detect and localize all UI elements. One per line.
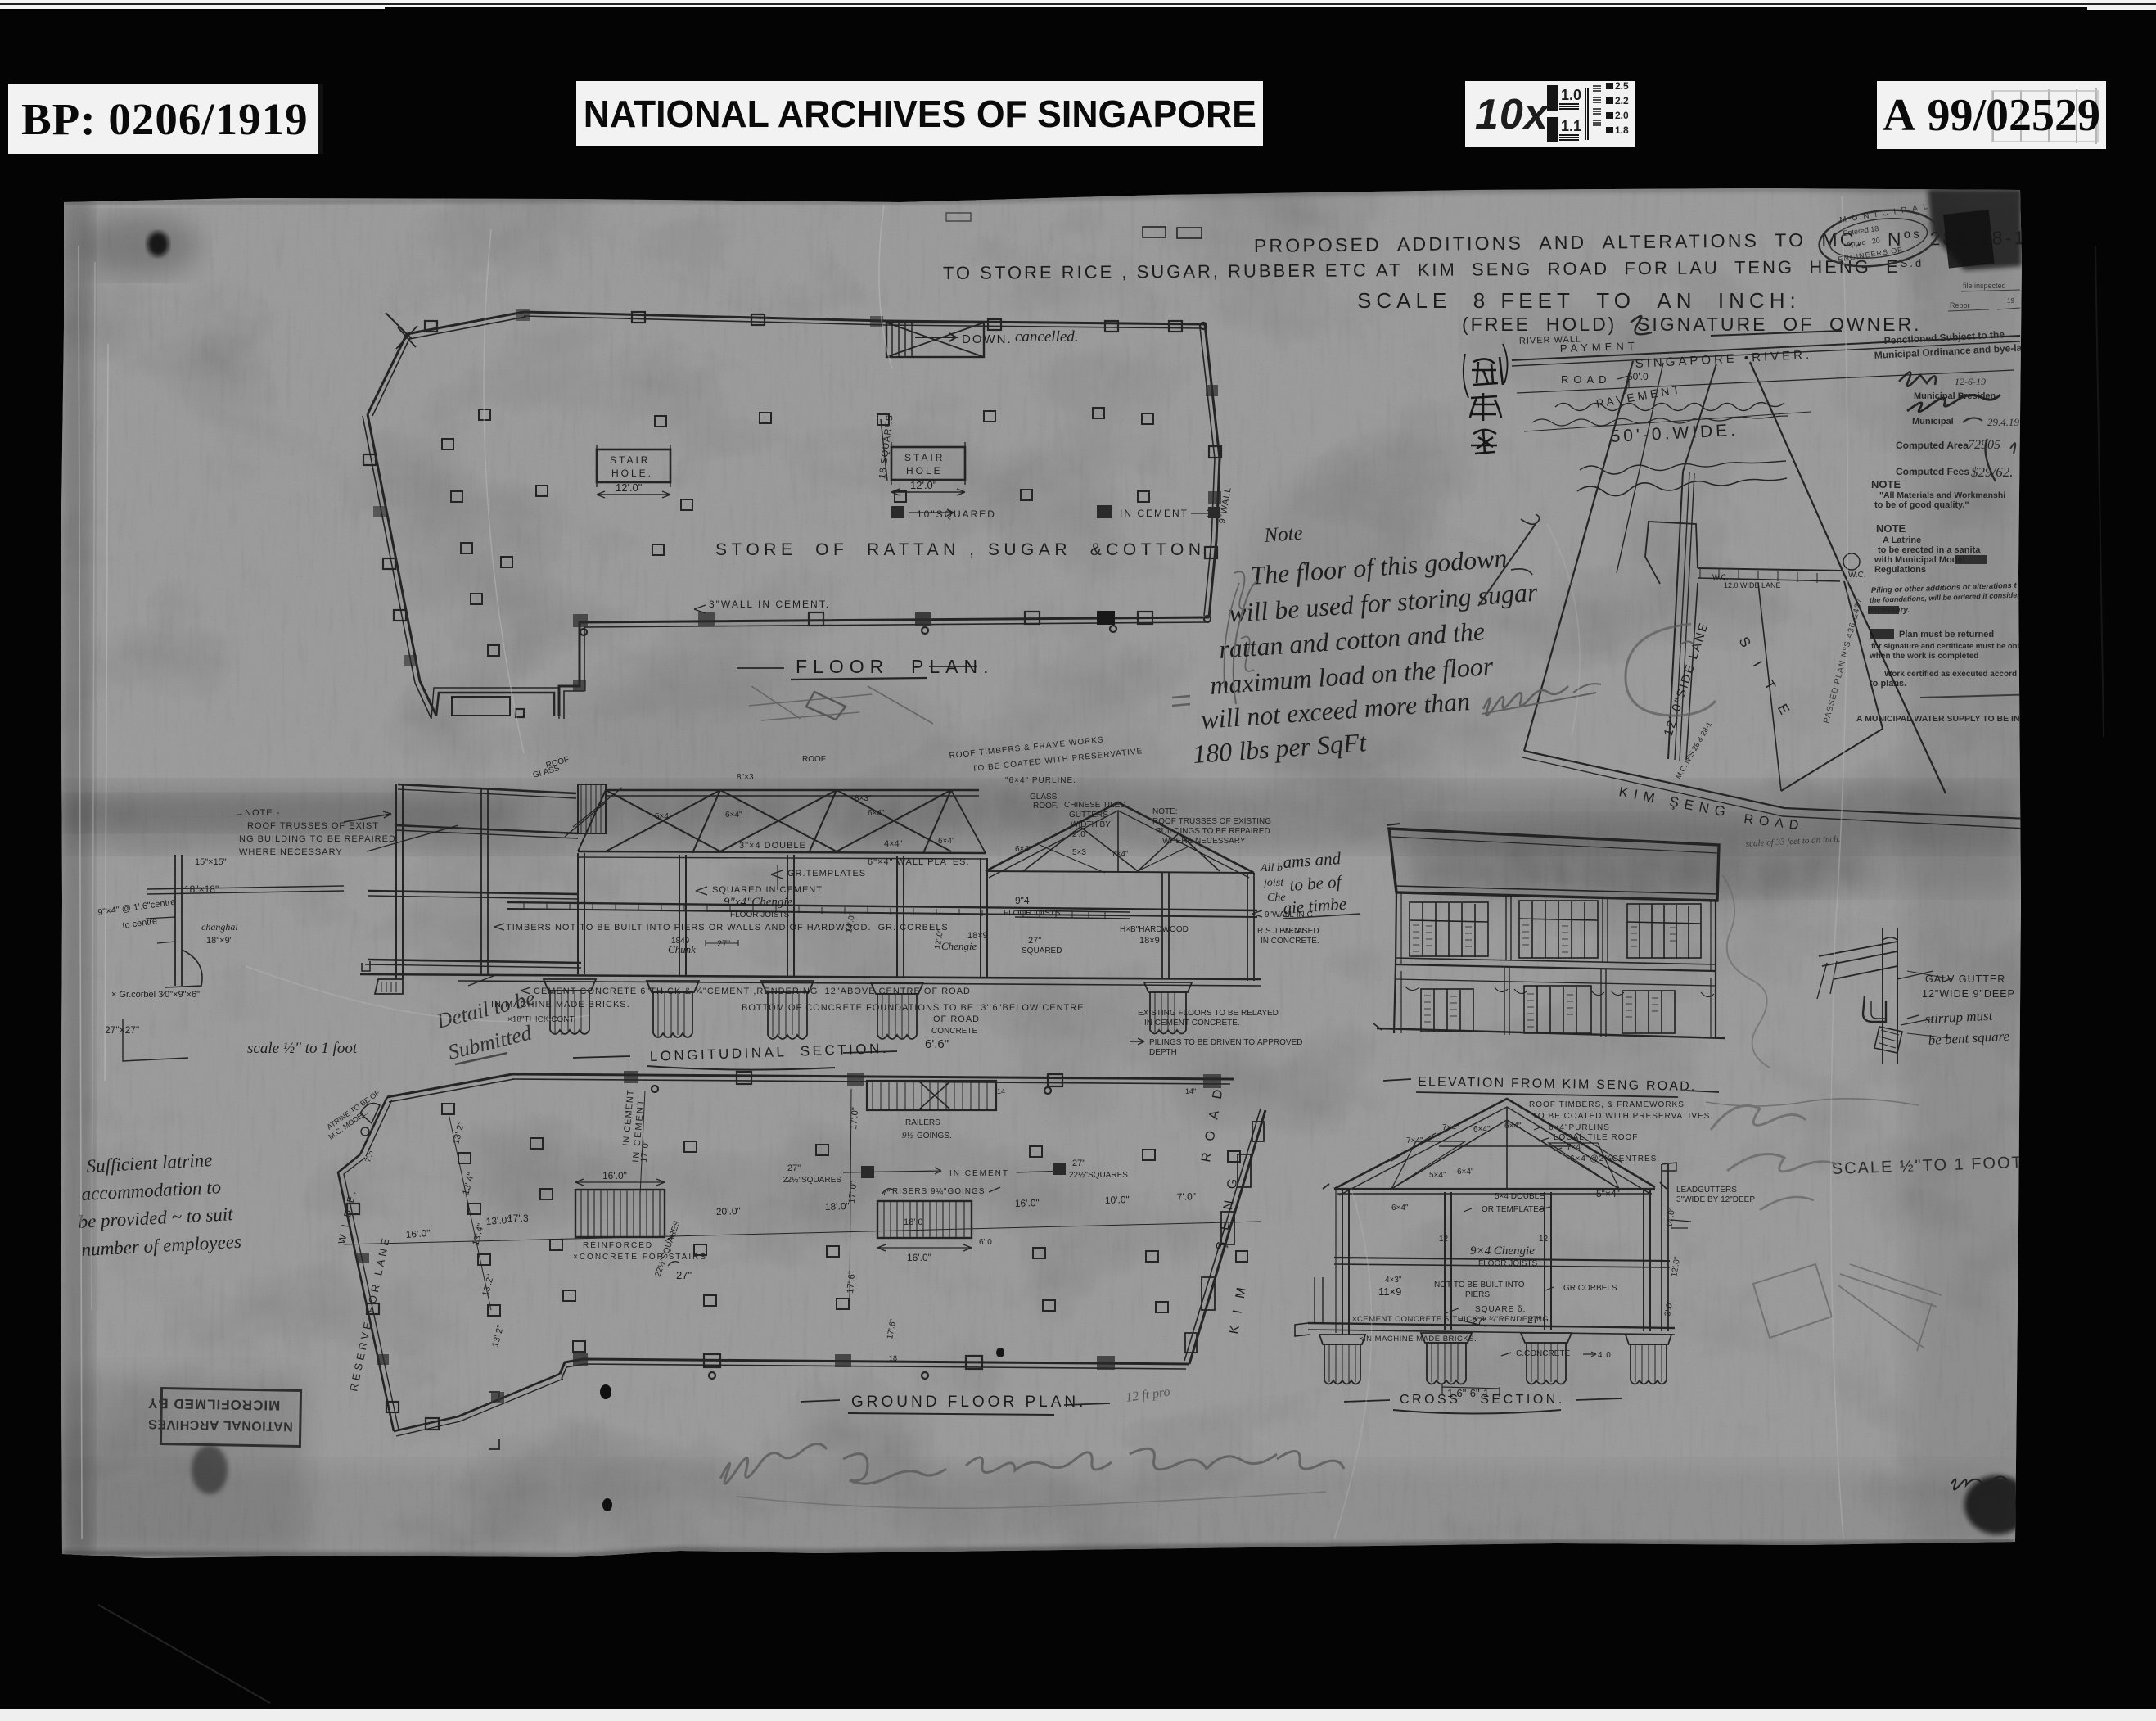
svg-text:18'.0: 18'.0 xyxy=(904,1217,923,1227)
svg-text:SCALE 8 FEET TO AN INCH:: SCALE 8 FEET TO AN INCH: xyxy=(1357,288,1801,313)
svg-text:PIERS.: PIERS. xyxy=(1465,1290,1492,1299)
svg-text:C.CONCRETE: C.CONCRETE xyxy=(1516,1349,1570,1358)
svg-text:SQUARED: SQUARED xyxy=(1022,946,1062,955)
svg-text:GOINGS.: GOINGS. xyxy=(917,1132,952,1141)
svg-text:18: 18 xyxy=(889,1354,897,1362)
svg-text:7×4": 7×4" xyxy=(1406,1136,1423,1145)
svg-text:NOTE: NOTE xyxy=(1871,478,1901,490)
svg-text:ROOF TRUSSES OF EXIST: ROOF TRUSSES OF EXIST xyxy=(247,821,379,831)
svg-text:22½"SQUARES: 22½"SQUARES xyxy=(1069,1171,1128,1180)
svg-text:LEADGUTTERS: LEADGUTTERS xyxy=(1676,1186,1737,1195)
svg-text:6'.6": 6'.6" xyxy=(925,1037,949,1051)
svg-text:FLOOR JOISTS: FLOOR JOISTS xyxy=(1478,1259,1538,1268)
svg-text:WHERE NECESSARY: WHERE NECESSARY xyxy=(1162,837,1246,846)
svg-text:NOTE:: NOTE: xyxy=(1152,807,1178,816)
svg-text:All b: All b xyxy=(1260,862,1283,874)
svg-text:12'.0": 12'.0" xyxy=(616,481,643,494)
svg-text:ROOF: ROOF xyxy=(802,755,826,764)
svg-text:7": 7" xyxy=(882,1189,891,1198)
svg-text:18'.0": 18'.0" xyxy=(825,1200,850,1213)
svg-text:FLOORJOISTS.: FLOORJOISTS. xyxy=(1004,909,1062,918)
svg-text:6'.0: 6'.0 xyxy=(979,1238,992,1247)
svg-text:18"×18": 18"×18" xyxy=(184,883,219,895)
svg-text:12"WIDE 9"DEEP: 12"WIDE 9"DEEP xyxy=(1922,988,2015,1000)
svg-text:cancelled.: cancelled. xyxy=(1015,328,1079,346)
svg-text:5×4 DOUBLE: 5×4 DOUBLE xyxy=(1495,1192,1545,1201)
svg-text:ROOF TRUSSES OF EXISTING: ROOF TRUSSES OF EXISTING xyxy=(1152,817,1271,826)
svg-text:IN CEMENT CONCRETE.: IN CEMENT CONCRETE. xyxy=(1144,1019,1240,1028)
svg-text:to be erected in a sanita: to be erected in a sanita xyxy=(1878,545,1981,555)
svg-text:16'.0": 16'.0" xyxy=(405,1227,431,1240)
svg-text:12'.0": 12'.0" xyxy=(910,479,937,491)
svg-text:Work certified as executed acc: Work certified as executed accord ng xyxy=(1884,670,2029,679)
svg-text:27": 27" xyxy=(787,1163,801,1173)
svg-text:6×4": 6×4" xyxy=(1015,845,1032,854)
svg-text:19: 19 xyxy=(2007,297,2014,305)
svg-text:27": 27" xyxy=(1072,1159,1085,1168)
svg-text:LOCAL TILE ROOF: LOCAL TILE ROOF xyxy=(1554,1133,1638,1142)
svg-text:6"×4" WALL PLATES.: 6"×4" WALL PLATES. xyxy=(868,857,970,867)
svg-text:3"WIDE BY 12"DEEP: 3"WIDE BY 12"DEEP xyxy=(1676,1195,1755,1204)
svg-text:27": 27" xyxy=(676,1269,692,1281)
svg-text:×IN MACHINE MADE BRICKS.: ×IN MACHINE MADE BRICKS. xyxy=(1359,1335,1477,1344)
svg-text:3"WALL IN CEMENT.: 3"WALL IN CEMENT. xyxy=(709,599,830,610)
svg-text:STAIR: STAIR xyxy=(610,454,650,466)
svg-text:when the work is completed: when the work is completed xyxy=(1869,652,1978,661)
svg-text:A Latrine: A Latrine xyxy=(1883,535,1921,545)
svg-text:×CONCRETE FOR STAIRS: ×CONCRETE FOR STAIRS xyxy=(573,1253,707,1262)
svg-text:for signature and certificate: for signature and certificate must be ob… xyxy=(1871,642,2041,651)
svg-text:HOLE: HOLE xyxy=(906,465,943,477)
svg-text:NATIONAL ARCHIVES: NATIONAL ARCHIVES xyxy=(148,1416,293,1433)
svg-text:GROUND FLOOR PLAN.: GROUND FLOOR PLAN. xyxy=(851,1394,1086,1411)
svg-text:11×9: 11×9 xyxy=(1378,1285,1401,1298)
svg-text:TO BE COATED WITH PRESERVATIVE: TO BE COATED WITH PRESERVATIVES. xyxy=(1532,1112,1713,1121)
svg-text:Chengie: Chengie xyxy=(941,940,977,952)
svg-text:6×4"@2½CENTRES.: 6×4"@2½CENTRES. xyxy=(1570,1154,1660,1163)
svg-text:REINFORCED: REINFORCED xyxy=(583,1241,653,1250)
svg-text:NOT TO BE BUILT INTO: NOT TO BE BUILT INTO xyxy=(1434,1281,1525,1290)
svg-text:6×4": 6×4" xyxy=(1457,1168,1474,1177)
svg-text:(FREE HOLD): (FREE HOLD) xyxy=(1462,314,1617,335)
svg-text:DOWN.: DOWN. xyxy=(962,332,1013,346)
svg-text:6×4": 6×4" xyxy=(1504,1122,1522,1131)
svg-text:SIGNATURE OF OWNER.: SIGNATURE OF OWNER. xyxy=(1637,314,1922,335)
svg-text:IN CONCRETE.: IN CONCRETE. xyxy=(1261,937,1319,946)
svg-text:BUILDINGS TO BE REPAIRED: BUILDINGS TO BE REPAIRED xyxy=(1156,827,1270,836)
svg-text:"All Materials and Workmanshi: "All Materials and Workmanshi xyxy=(1879,490,2005,500)
svg-text:6×4"PURLINS: 6×4"PURLINS xyxy=(1549,1123,1610,1132)
svg-text:4'.0: 4'.0 xyxy=(1598,1351,1611,1360)
svg-text:12: 12 xyxy=(1439,1235,1449,1244)
svg-text:STORE OF RATTAN , SUGAR &CO: STORE OF RATTAN , SUGAR &COTTON xyxy=(715,540,1205,559)
svg-text:→NOTE:-: →NOTE:- xyxy=(235,808,280,818)
svg-text:W.C.: W.C. xyxy=(1848,571,1866,580)
svg-text:ING BUILDING TO BE REPAIRED: ING BUILDING TO BE REPAIRED xyxy=(236,834,396,844)
svg-text:Chunk: Chunk xyxy=(668,943,696,955)
svg-text:SQUARE δ.: SQUARE δ. xyxy=(1475,1305,1526,1314)
svg-text:29.4.19: 29.4.19 xyxy=(1987,416,2020,428)
svg-text:ROOF TIMBERS, & FRAMEWORKS: ROOF TIMBERS, & FRAMEWORKS xyxy=(1529,1100,1685,1109)
svg-text:WHERE NECESSARY: WHERE NECESSARY xyxy=(239,847,343,857)
svg-text:Municipal: Municipal xyxy=(1912,417,1956,427)
svg-text:Computed Area: Computed Area xyxy=(1896,440,1969,451)
svg-text:13'.0": 13'.0" xyxy=(485,1214,511,1227)
svg-text:FLOOR PLAN.: FLOOR PLAN. xyxy=(796,656,994,677)
svg-text:7×4": 7×4" xyxy=(1442,1123,1459,1132)
svg-text:STAIR: STAIR xyxy=(904,452,945,463)
svg-text:OR TEMPLATES: OR TEMPLATES xyxy=(1482,1205,1545,1214)
svg-text:GALV GUTTER: GALV GUTTER xyxy=(1925,973,2005,985)
svg-text:27": 27" xyxy=(717,939,730,949)
svg-text:18"×9": 18"×9" xyxy=(206,936,233,946)
svg-text:3"×4 DOUBLE: 3"×4 DOUBLE xyxy=(739,841,806,851)
svg-text:MICROFILMED BY: MICROFILMED BY xyxy=(147,1395,281,1413)
svg-text:MENT.: MENT. xyxy=(1282,927,1306,936)
svg-text:RISERS 9¼"GOINGS: RISERS 9¼"GOINGS xyxy=(892,1186,985,1196)
svg-text:Repor: Repor xyxy=(1950,301,1970,309)
svg-text:joist: joist xyxy=(1262,877,1284,889)
svg-text:17'.0": 17'.0" xyxy=(847,1181,859,1204)
svg-text:SQUARED IN CEMENT: SQUARED IN CEMENT xyxy=(712,885,823,895)
svg-text:ams and: ams and xyxy=(1283,848,1342,872)
svg-text:OF ROAD: OF ROAD xyxy=(933,1014,980,1024)
svg-text:tropan Gamibre: tropan Gamibre xyxy=(573,774,1107,841)
svg-text:6×4": 6×4" xyxy=(1391,1204,1409,1213)
svg-text:7'.0": 7'.0" xyxy=(1177,1190,1197,1203)
svg-text:IN CEMENT: IN CEMENT xyxy=(1120,508,1189,519)
svg-text:14: 14 xyxy=(997,1087,1005,1095)
svg-text:Municipal Presiden: Municipal Presiden xyxy=(1914,391,1996,401)
svg-text:changhai: changhai xyxy=(201,921,238,933)
svg-text:27": 27" xyxy=(1028,936,1041,946)
svg-text:7×4": 7×4" xyxy=(1567,1143,1584,1152)
svg-text:15"×15": 15"×15" xyxy=(195,857,227,867)
svg-text:4×3": 4×3" xyxy=(1385,1276,1402,1285)
svg-text:DEPTH: DEPTH xyxy=(1149,1048,1177,1057)
svg-text:CEMENT CONCRETE 6"THICK & ¾"CE: CEMENT CONCRETE 6"THICK & ¾"CEMENT ,REND… xyxy=(534,987,974,996)
svg-text:12-6-19: 12-6-19 xyxy=(1955,376,1986,387)
svg-text:Computed Fees: Computed Fees xyxy=(1896,466,1969,477)
svg-text:A MUNICIPAL WATER SUPPLY TO BE: A MUNICIPAL WATER SUPPLY TO BE INSTALL xyxy=(1856,714,2047,724)
svg-text:CONCRETE: CONCRETE xyxy=(931,1027,977,1036)
svg-text:scale ½" to 1 foot: scale ½" to 1 foot xyxy=(247,1040,358,1057)
svg-text:14": 14" xyxy=(1185,1087,1196,1095)
svg-text:with Municipal Model: with Municipal Model xyxy=(1874,555,1965,565)
svg-text:27"×27": 27"×27" xyxy=(105,1024,139,1036)
svg-text:to plans.: to plans. xyxy=(1870,679,1906,689)
svg-text:NOTE: NOTE xyxy=(1876,522,1906,535)
svg-text:TIMBERS NOT TO BE BUILT INTO P: TIMBERS NOT TO BE BUILT INTO PIERS OR WA… xyxy=(506,923,949,933)
svg-text:9"x4"Chengie: 9"x4"Chengie xyxy=(724,896,793,909)
svg-text:GR.TEMPLATES: GR.TEMPLATES xyxy=(787,869,866,879)
svg-text:7×4": 7×4" xyxy=(1112,850,1129,859)
svg-text:17'.6": 17'.6" xyxy=(846,1271,857,1294)
svg-text:W.C.: W.C. xyxy=(1712,573,1729,581)
svg-text:to be of: to be of xyxy=(1289,871,1345,895)
svg-text:5"×4": 5"×4" xyxy=(1596,1188,1620,1199)
svg-text:6×4": 6×4" xyxy=(1473,1125,1491,1134)
svg-text:PILINGS TO BE DRIVEN TO APPROV: PILINGS TO BE DRIVEN TO APPROVED xyxy=(1149,1038,1302,1047)
svg-text:16'.0": 16'.0" xyxy=(1015,1197,1040,1209)
svg-text:9"4: 9"4 xyxy=(1015,895,1030,906)
svg-text:12: 12 xyxy=(1539,1235,1549,1244)
svg-text:10"SQUARED: 10"SQUARED xyxy=(917,508,996,520)
svg-text:FLOOR JOISTS: FLOOR JOISTS xyxy=(730,910,790,919)
svg-text:22½"SQUARES: 22½"SQUARES xyxy=(783,1176,841,1185)
svg-text:16'.0": 16'.0" xyxy=(602,1170,627,1181)
svg-text:10'.0": 10'.0" xyxy=(1105,1194,1130,1206)
svg-text:Plan must be returned: Plan must be returned xyxy=(1899,630,1994,639)
svg-text:× Gr.corbel 3⁄0"×9"×6": × Gr.corbel 3⁄0"×9"×6" xyxy=(111,990,200,1000)
svg-text:ROAD: ROAD xyxy=(1561,373,1612,386)
svg-text:IN CEMENT: IN CEMENT xyxy=(949,1169,1009,1178)
svg-text:GR CORBELS: GR CORBELS xyxy=(1563,1284,1617,1293)
svg-text:Regulations: Regulations xyxy=(1874,565,1926,575)
svg-text:Note: Note xyxy=(1263,522,1304,547)
svg-text:9×4 Chengie: 9×4 Chengie xyxy=(1470,1244,1535,1258)
svg-text:5×4": 5×4" xyxy=(1429,1171,1446,1180)
svg-text:BOTTOM OF CONCRETE FOUNDATIONS: BOTTOM OF CONCRETE FOUNDATIONS TO BE 3'.… xyxy=(742,1003,1085,1013)
svg-text:RAILERS: RAILERS xyxy=(905,1118,940,1127)
svg-text:72905: 72905 xyxy=(1968,438,2000,452)
svg-text:17'.0": 17'.0" xyxy=(849,1107,860,1130)
svg-text:12.0 WIDE LANE: 12.0 WIDE LANE xyxy=(1724,581,1781,589)
svg-text:Singapore: Singapore xyxy=(1506,831,1877,903)
svg-text:file inspected: file inspected xyxy=(1963,282,2006,290)
svg-text:16'.0": 16'.0" xyxy=(907,1252,931,1263)
svg-text:5×3: 5×3 xyxy=(1072,848,1086,857)
svg-text:×CEMENT CONCRETE 6"THICK & ¾"R: ×CEMENT CONCRETE 6"THICK & ¾"RENDERING xyxy=(1352,1315,1549,1324)
svg-text:17'.3: 17'.3 xyxy=(507,1213,529,1224)
svg-text:CROSS SECTION.: CROSS SECTION. xyxy=(1400,1393,1565,1407)
svg-text:20'.0": 20'.0" xyxy=(716,1205,741,1217)
svg-text:HOLE.: HOLE. xyxy=(611,468,653,479)
svg-text:18×9: 18×9 xyxy=(1139,936,1160,946)
svg-text:to be of good quality.": to be of good quality." xyxy=(1874,500,1969,510)
svg-text:9½: 9½ xyxy=(902,1131,913,1141)
svg-text:EXISTING FLOORS TO BE RELAYED: EXISTING FLOORS TO BE RELAYED xyxy=(1138,1009,1279,1018)
svg-text:H×B"HARDWOOD: H×B"HARDWOOD xyxy=(1120,925,1189,934)
